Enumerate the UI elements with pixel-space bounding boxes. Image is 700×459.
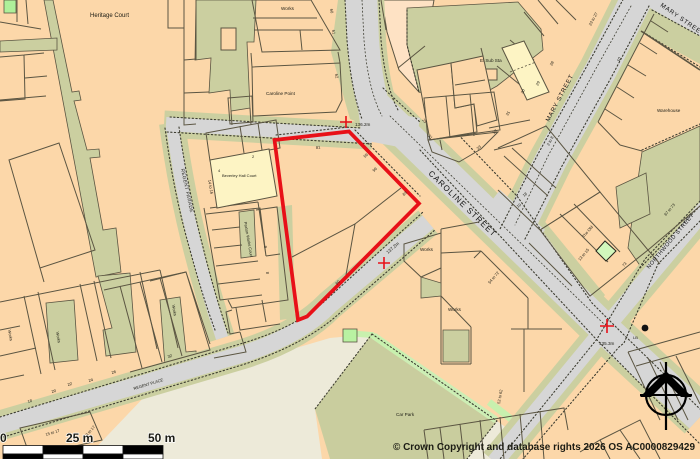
svg-text:136.2m: 136.2m bbox=[355, 122, 370, 127]
svg-text:135.3m: 135.3m bbox=[599, 341, 614, 346]
svg-text:50 m: 50 m bbox=[148, 431, 175, 445]
svg-text:0: 0 bbox=[0, 431, 7, 445]
svg-text:Caroline Point: Caroline Point bbox=[266, 91, 296, 96]
svg-text:Works: Works bbox=[420, 247, 434, 252]
svg-text:LB: LB bbox=[633, 335, 638, 340]
svg-text:Warehouse: Warehouse bbox=[657, 108, 681, 113]
svg-text:© Crown Copyright and database: © Crown Copyright and database rights 20… bbox=[393, 442, 695, 453]
svg-text:Car Park: Car Park bbox=[396, 412, 415, 417]
svg-text:Heritage Court: Heritage Court bbox=[90, 13, 129, 19]
svg-text:Beverley Hall Court: Beverley Hall Court bbox=[222, 173, 257, 178]
svg-text:El Sub Sta: El Sub Sta bbox=[480, 58, 502, 63]
svg-text:Works: Works bbox=[448, 307, 462, 312]
svg-text:25 m: 25 m bbox=[66, 431, 93, 445]
svg-text:Works: Works bbox=[281, 6, 295, 11]
